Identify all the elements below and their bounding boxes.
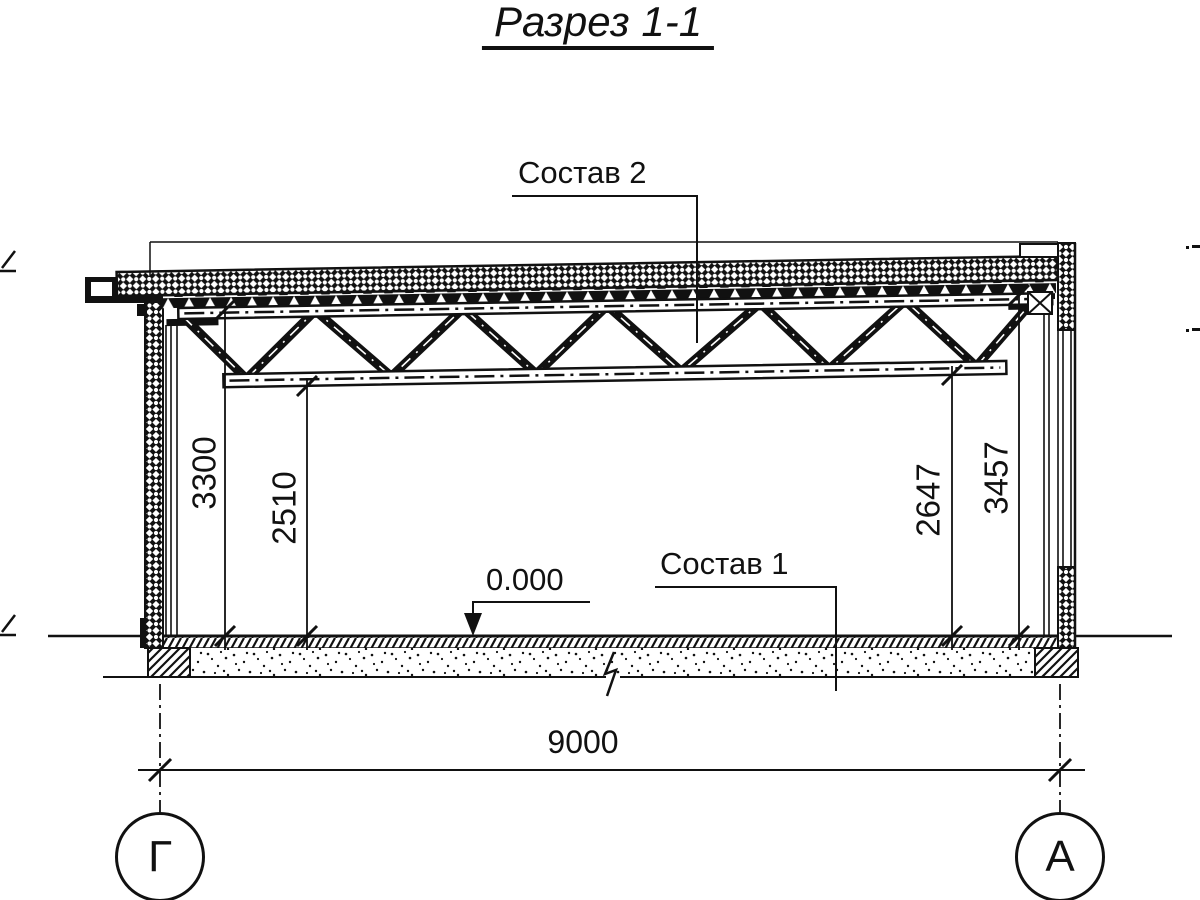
- floor-screed-hatch: [163, 637, 1058, 648]
- dim-left-truss-top-label: 3300: [188, 436, 221, 509]
- wall-base-detail: [140, 618, 146, 648]
- dim-span: [138, 759, 1085, 781]
- foundation-right: [1035, 648, 1078, 677]
- floor-composition-callout: Состав 1: [660, 548, 789, 579]
- elevation-zero-label: 0.000: [486, 564, 564, 595]
- axis-bubble-right: А: [1015, 812, 1105, 900]
- wall-anchor-detail: [137, 304, 147, 316]
- dim-right-truss-bottom-label: 2647: [912, 463, 945, 536]
- wall-lower-panel: [1058, 567, 1075, 648]
- dim-span-label: 9000: [547, 726, 618, 758]
- left-wall: [137, 300, 177, 648]
- foundation-left: [148, 648, 190, 677]
- parapet-panel: [1058, 243, 1075, 330]
- axis-right-letter: А: [1045, 832, 1074, 882]
- elevation-arrow: [464, 613, 482, 636]
- roof-assembly: [117, 256, 1060, 389]
- section-drawing-sheet: Разрез 1-1 Состав 2 Состав 1 0.000 3300 …: [0, 0, 1200, 900]
- dim-left-truss-bottom-label: 2510: [268, 471, 301, 544]
- drawing-title: Разрез 1-1: [482, 0, 714, 50]
- roof-composition-callout: Состав 2: [518, 157, 647, 188]
- section-linework: [0, 0, 1200, 900]
- axis-left-letter: Г: [148, 832, 172, 882]
- dim-right-truss-top-label: 3457: [980, 441, 1013, 514]
- elevation-zero-marker: [464, 602, 590, 636]
- axis-bubble-left: Г: [115, 812, 205, 900]
- truss: [166, 293, 1053, 388]
